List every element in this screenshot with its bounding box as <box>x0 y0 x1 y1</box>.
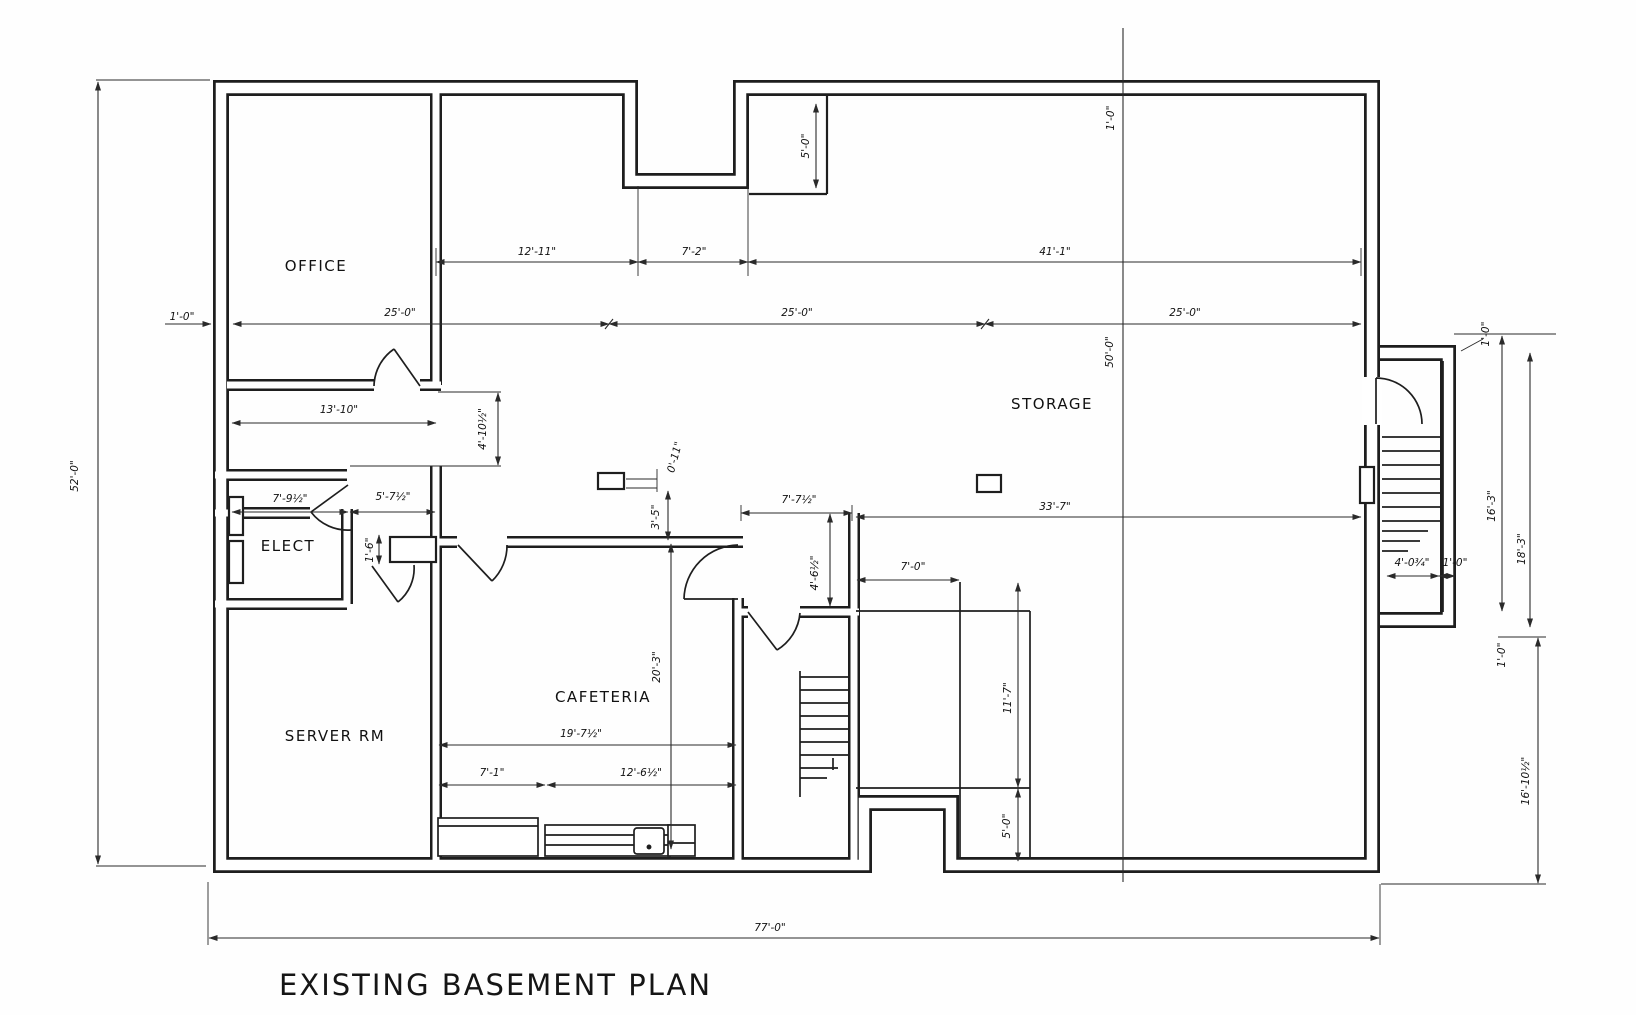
room-label-office: OFFICE <box>285 257 347 275</box>
dim-bay-left: 25'-0" <box>384 307 416 319</box>
drawing-sheet: 1'-0" 25'-0" 25'-0" 25'-0" 12'-11" 7'-2"… <box>0 0 1636 1015</box>
top-vestibule-wall <box>749 96 827 194</box>
sheet-title: EXISTING BASEMENT PLAN <box>279 968 712 1002</box>
electrical-panel <box>229 541 243 583</box>
dim-counter-l: 7'-1" <box>480 767 505 779</box>
cafeteria-counters <box>438 818 695 856</box>
right-wall-door-opening <box>1362 377 1382 425</box>
stair-landing-door <box>748 612 800 650</box>
dim-ext-top-wall: 1'-0" <box>1480 322 1492 347</box>
dim-landing-d: 4'-6½" <box>809 555 821 590</box>
room-label-server-rm: SERVER RM <box>285 727 385 745</box>
stair-extension-wall <box>1380 353 1448 620</box>
dim-office-w: 13'-10" <box>320 404 358 416</box>
dim-top-wall: 1'-0" <box>1105 106 1117 131</box>
dim-ext-h: 18'-3" <box>1516 533 1528 565</box>
office-door <box>374 349 420 386</box>
dim-elect-w: 7'-9½" <box>272 493 307 505</box>
dim-col-w: 0'-11" <box>665 440 685 474</box>
dim-caf-w: 19'-7½" <box>560 728 602 740</box>
wall-stub <box>390 537 436 562</box>
dim-col-gap: 3'-5" <box>650 505 662 530</box>
dim-right-h: 16'-10½" <box>1520 757 1532 805</box>
walls-black <box>215 88 1448 866</box>
dim-left-wall: 1'-0" <box>170 311 195 323</box>
electrical-panel <box>229 497 243 535</box>
dimension-labels: 1'-0" 25'-0" 25'-0" 25'-0" 12'-11" 7'-2"… <box>69 106 1532 934</box>
structural-column <box>598 473 624 489</box>
dim-room-s: 5'-0" <box>1001 814 1013 839</box>
exterior-wall-outline <box>221 88 1372 865</box>
dim-ext-inner-h: 16'-3" <box>1486 490 1498 522</box>
dim-stair-w: 4'-0¾" <box>1394 557 1429 569</box>
dim-counter-r: 12'-6½" <box>620 767 662 779</box>
dim-room-w: 7'-0" <box>901 561 926 573</box>
dim-office-top: 12'-11" <box>518 246 556 258</box>
dim-height-total: 52'-0" <box>69 460 81 492</box>
stairwell-west-door <box>684 545 738 599</box>
dim-stair-wall: 1'-0" <box>1443 557 1468 569</box>
exterior-stair-door <box>1376 378 1422 424</box>
dim-height-storage: 50'-0" <box>1104 336 1116 368</box>
dim-bay-right: 25'-0" <box>1169 307 1201 319</box>
dim-notch: 7'-2" <box>682 246 707 258</box>
dim-stub-h: 1'-6" <box>364 538 376 563</box>
dim-storage-mid: 33'-7" <box>1039 501 1071 513</box>
room-label-elect: ELECT <box>261 537 315 555</box>
room-label-storage: STORAGE <box>1011 395 1093 413</box>
floor-plan-svg: 1'-0" 25'-0" 25'-0" 25'-0" 12'-11" 7'-2"… <box>0 0 1636 1015</box>
cafeteria-door <box>458 545 507 581</box>
room-label-cafeteria: CAFETERIA <box>555 688 651 706</box>
wall-pilaster <box>1360 467 1374 503</box>
hall-door <box>372 565 414 602</box>
central-stair <box>800 671 848 797</box>
dim-vest-w: 5'-7½" <box>375 491 410 503</box>
dim-width-total: 77'-0" <box>754 922 786 934</box>
dim-room-h: 11'-7" <box>1002 682 1014 714</box>
walls-white <box>215 88 1448 866</box>
dim-storage-top: 41'-1" <box>1039 246 1071 258</box>
doors <box>311 349 1422 650</box>
sink <box>634 828 664 854</box>
dim-bay-mid: 25'-0" <box>781 307 813 319</box>
dim-stair-top: 7'-7½" <box>781 494 816 506</box>
structural-column <box>977 475 1001 492</box>
dim-caf-d: 20'-3" <box>651 651 663 683</box>
exterior-stair <box>1382 361 1443 612</box>
dim-vestibule: 5'-0" <box>800 134 812 159</box>
dim-hall-d: 4'-10½" <box>477 408 489 450</box>
interior-walls <box>215 92 859 866</box>
dim-ext-bot-wall: 1'-0" <box>1496 643 1508 668</box>
thin-partitions <box>350 96 1374 858</box>
